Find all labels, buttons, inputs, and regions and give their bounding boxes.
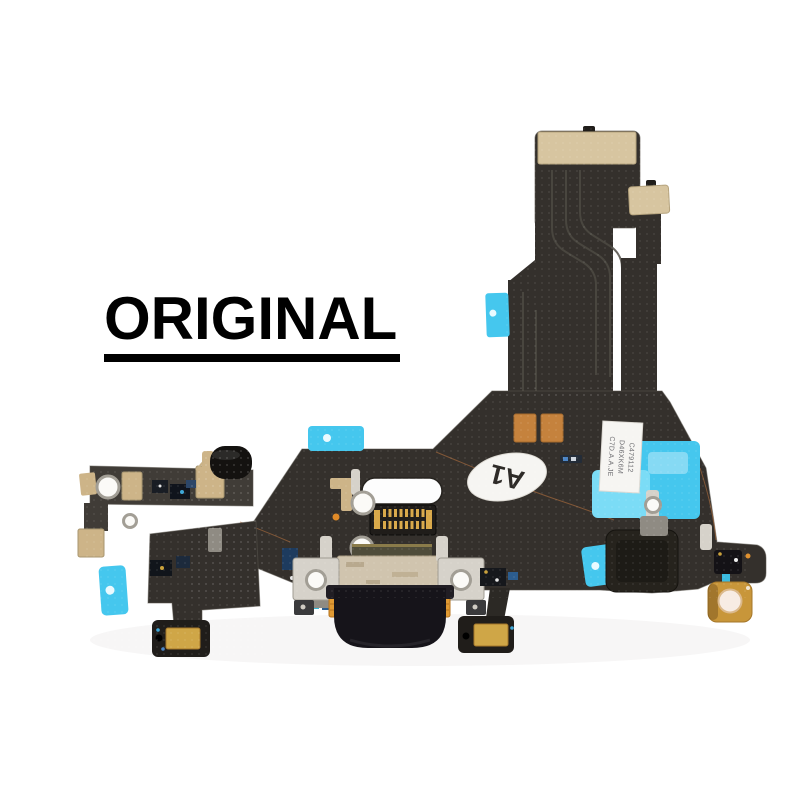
original-badge: ORIGINAL (104, 289, 400, 362)
ribbon-texture (505, 128, 673, 398)
flex-cable-illustration: A1 C479112 D46XK6M C7D.A.A.JE (0, 0, 800, 800)
left-texture (86, 440, 266, 660)
product-photo-canvas: A1 C479112 D46XK6M C7D.A.A.JE ORIGINAL (0, 0, 800, 800)
body-texture (186, 388, 746, 598)
